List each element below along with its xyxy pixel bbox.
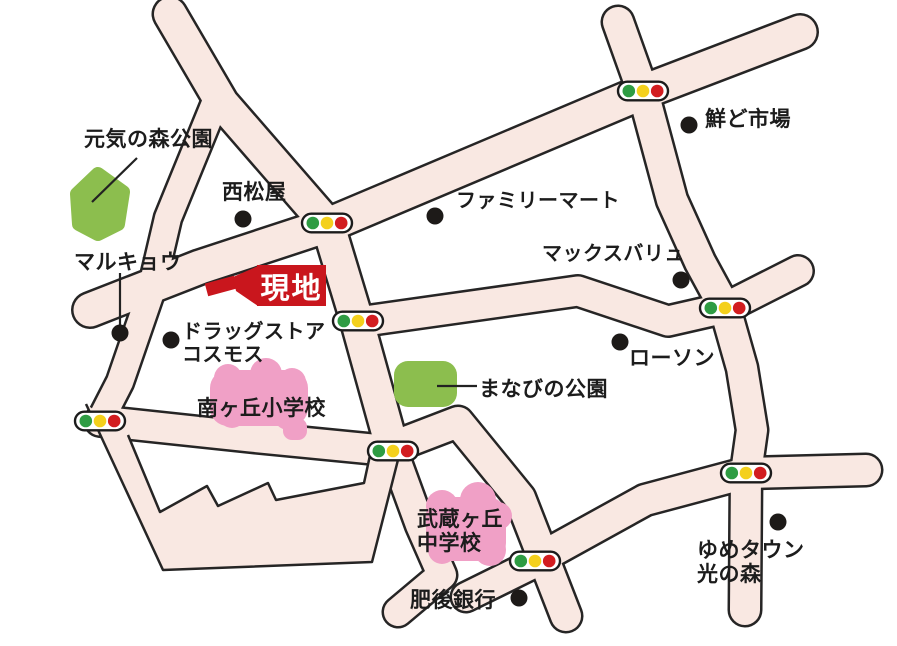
- label-marukyo: マルキョウ: [74, 251, 182, 273]
- signal-higobank: [510, 552, 560, 571]
- label-sendo-ichiba: 鮮ど市場: [705, 108, 791, 130]
- signal-higobank-yellow-lamp: [529, 555, 542, 568]
- signal-top-yellow-lamp: [637, 85, 650, 98]
- nishimatsuya-dot: [235, 211, 252, 228]
- manabi-park: [394, 361, 457, 407]
- marukyo-dot: [112, 325, 129, 342]
- yumetown-dot: [770, 514, 787, 531]
- signal-nishimatsuya: [302, 214, 352, 233]
- sendo-ichiba-dot: [681, 117, 698, 134]
- cosmos-dot: [163, 332, 180, 349]
- signal-school-green-lamp: [373, 445, 386, 458]
- signal-west-green-lamp: [80, 415, 93, 428]
- signal-east: [721, 464, 771, 483]
- signal-school: [368, 442, 418, 461]
- signal-west: [75, 412, 125, 431]
- label-yumetown-line1: ゆめタウン: [697, 539, 805, 561]
- label-musashigaoka-line1: 武蔵ヶ丘: [417, 508, 503, 530]
- label-familymart: ファミリーマート: [456, 190, 620, 211]
- signal-west-yellow-lamp: [94, 415, 107, 428]
- label-nishimatsuya: 西松屋: [222, 181, 287, 203]
- label-minamigaoka-elementary: 南ヶ丘小学校: [197, 397, 326, 419]
- label-maxvalu: マックスバリュ: [542, 243, 685, 264]
- signal-east-yellow-lamp: [740, 467, 753, 480]
- lawson-dot: [612, 334, 629, 351]
- label-manabi-park: まなびの公園: [479, 378, 608, 400]
- minamigaoka-elementary-grounds-part: [278, 368, 306, 396]
- label-yumetown-line2: 光の森: [697, 563, 762, 585]
- minamigaoka-elementary-grounds-part: [214, 364, 242, 392]
- signal-east-red-lamp: [754, 467, 767, 480]
- signal-site-red-lamp: [366, 315, 379, 328]
- signal-lawson-yellow-lamp: [719, 302, 732, 315]
- signal-site: [333, 312, 383, 331]
- label-genki-no-mori-park: 元気の森公園: [84, 128, 213, 150]
- signal-nishimatsuya-red-lamp: [335, 217, 348, 230]
- signal-site-green-lamp: [338, 315, 351, 328]
- signal-lawson: [700, 299, 750, 318]
- site-marker: 現地: [257, 265, 326, 306]
- signal-top: [618, 82, 668, 101]
- label-drugstore-cosmos-line2: コスモス: [182, 344, 264, 365]
- signal-lawson-green-lamp: [705, 302, 718, 315]
- signal-school-yellow-lamp: [387, 445, 400, 458]
- signal-top-green-lamp: [623, 85, 636, 98]
- signal-west-red-lamp: [108, 415, 121, 428]
- signal-east-green-lamp: [726, 467, 739, 480]
- signal-higobank-green-lamp: [515, 555, 528, 568]
- signal-site-yellow-lamp: [352, 315, 365, 328]
- signal-higobank-red-lamp: [543, 555, 556, 568]
- higo-bank-dot: [511, 590, 528, 607]
- genki-no-mori-park: [77, 174, 123, 234]
- label-drugstore-cosmos-line1: ドラッグストア: [182, 321, 326, 342]
- signal-lawson-red-lamp: [733, 302, 746, 315]
- label-lawson: ローソン: [629, 347, 715, 369]
- label-higo-bank: 肥後銀行: [410, 589, 496, 611]
- label-musashigaoka-line2: 中学校: [417, 532, 482, 554]
- map-canvas: 元気の森公園 西松屋 ファミリーマート 鮮ど市場 マックスバリュ マルキョウ ド…: [0, 0, 897, 646]
- signal-nishimatsuya-yellow-lamp: [321, 217, 334, 230]
- signal-top-red-lamp: [651, 85, 664, 98]
- signal-school-red-lamp: [401, 445, 414, 458]
- signal-nishimatsuya-green-lamp: [307, 217, 320, 230]
- maxvalu-dot: [673, 272, 690, 289]
- familymart-dot: [427, 208, 444, 225]
